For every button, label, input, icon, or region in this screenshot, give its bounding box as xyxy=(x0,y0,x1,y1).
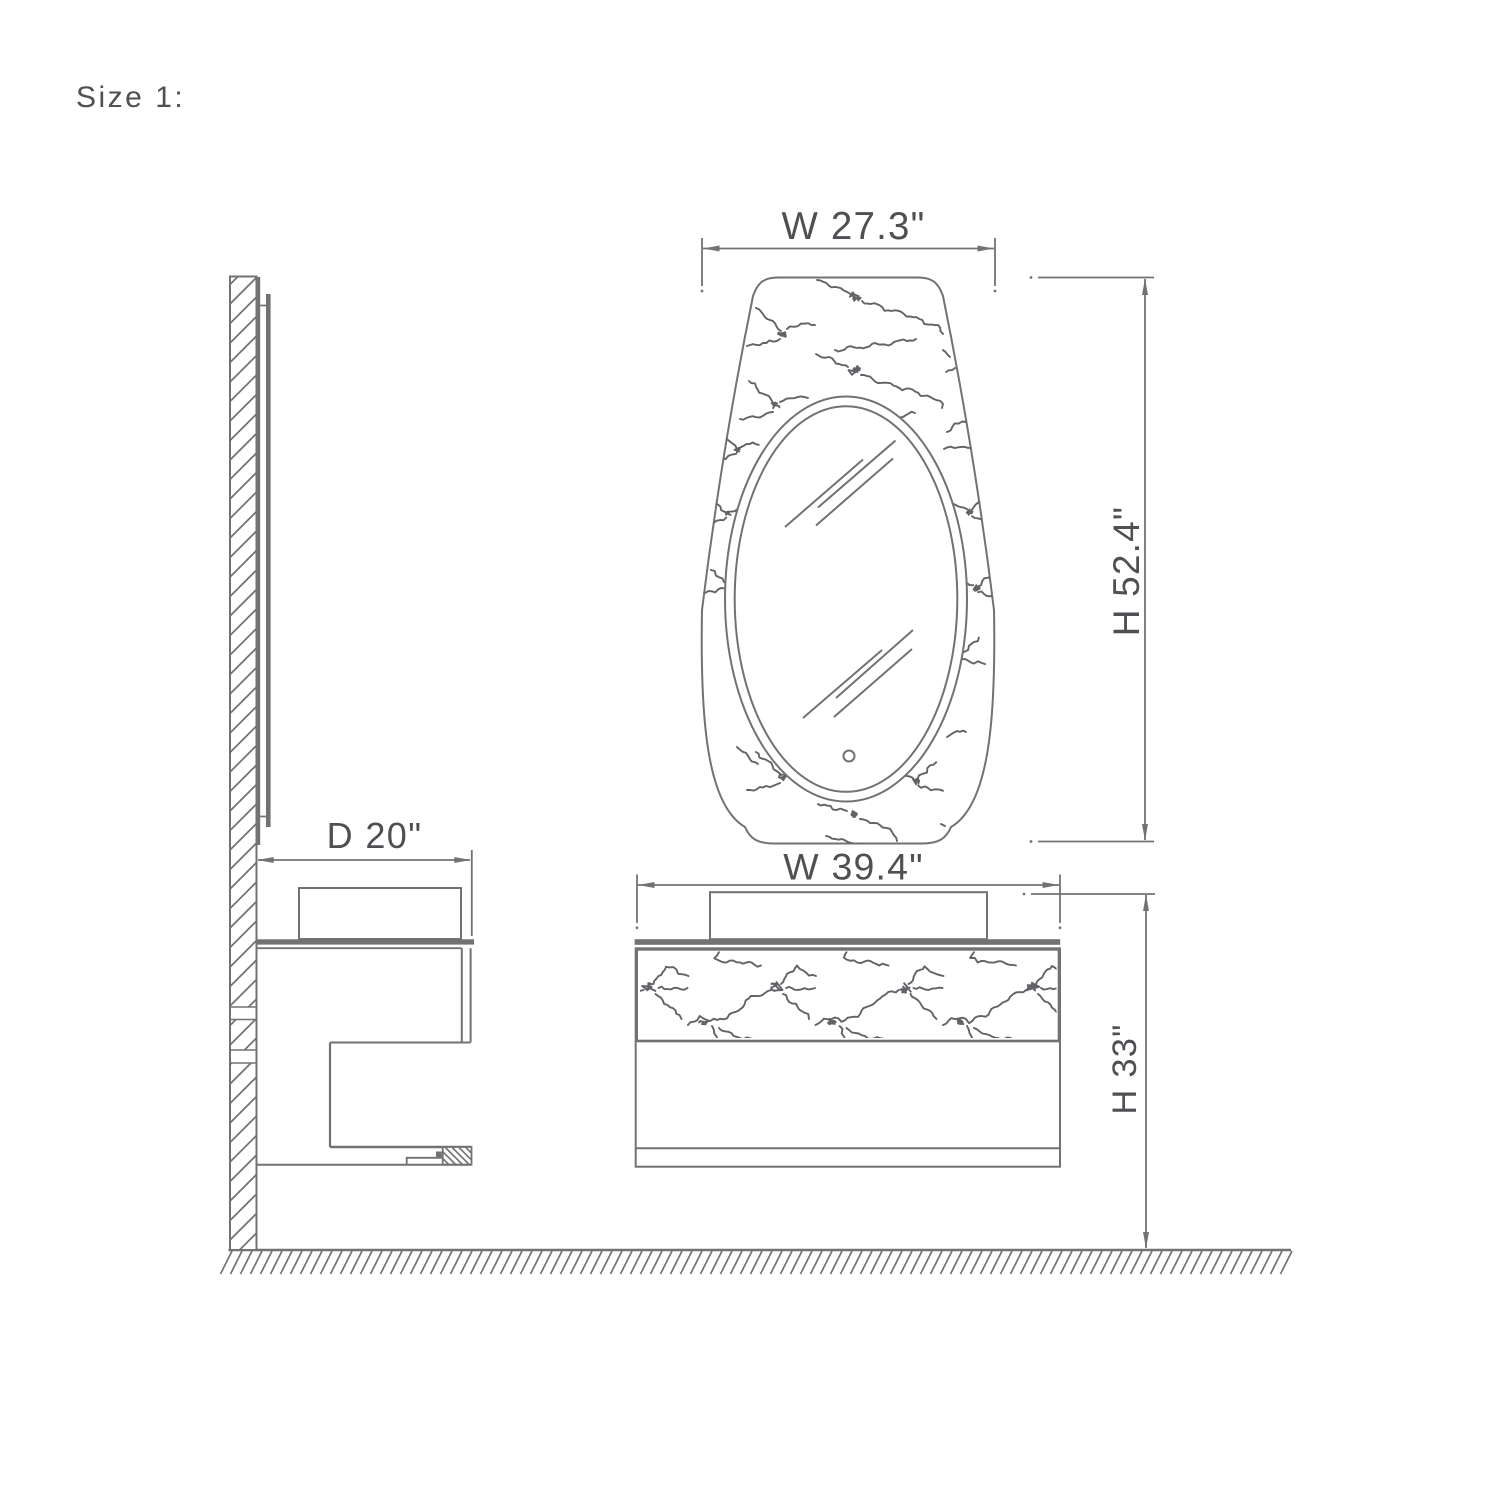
svg-text:Size 1:: Size 1: xyxy=(76,81,185,114)
svg-text:W 27.3": W 27.3" xyxy=(781,205,925,248)
svg-text:H 33": H 33" xyxy=(1106,1023,1144,1114)
svg-text:D 20": D 20" xyxy=(327,815,423,856)
svg-text:H 52.4": H 52.4" xyxy=(1106,506,1147,637)
svg-text:W 39.4": W 39.4" xyxy=(783,846,924,888)
